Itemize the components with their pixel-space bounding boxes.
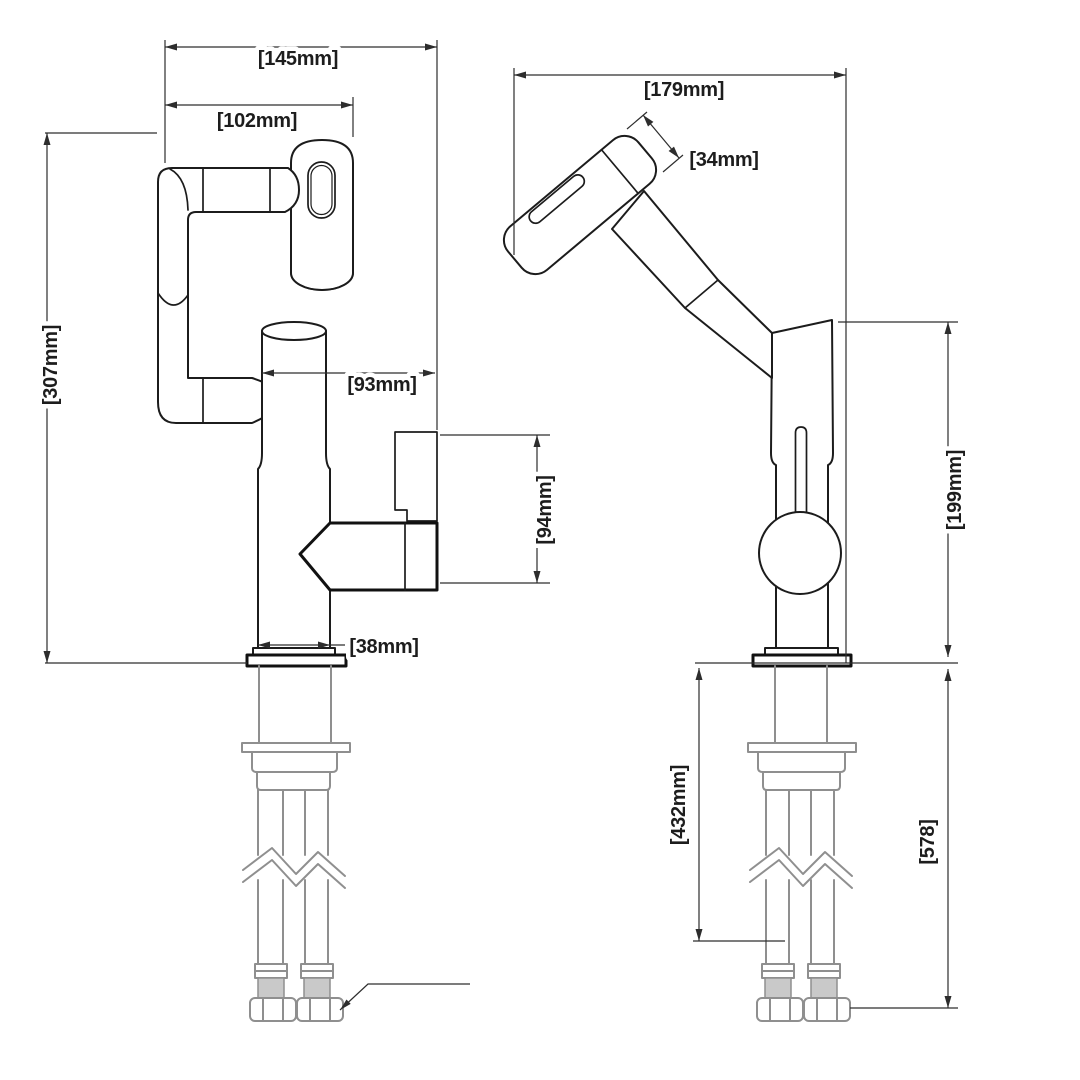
side-view: [179mm] [34mm] [199mm] [432mm] [578]: [497, 68, 966, 1021]
front-spray-head: [291, 140, 353, 290]
dim-label-side-height-above-counter: [199mm]: [944, 450, 966, 530]
hose-hex-nut: [804, 998, 850, 1021]
front-side-spout: [300, 523, 437, 590]
dim-label-side-overall-reach: [179mm]: [644, 79, 724, 101]
side-knob: [759, 512, 841, 594]
dim-label-front-base-diameter: [38mm]: [349, 636, 418, 658]
front-view: [145mm] [102mm] [307mm] [93mm] [94mm]: [40, 40, 556, 1021]
side-neck: [612, 191, 772, 378]
front-mounting-hardware: [242, 666, 470, 1021]
dim-label-front-overall-height: [307mm]: [40, 325, 62, 405]
mounting-washer: [242, 743, 350, 752]
mounting-nut: [758, 752, 845, 772]
side-supply-hoses: [750, 790, 852, 1021]
hose-hex-nut: [297, 998, 343, 1021]
side-lever-rod: [796, 427, 807, 520]
hose-nut-leader: [340, 984, 470, 1010]
dim-label-front-overall-width: [145mm]: [258, 48, 338, 70]
dim-label-side-hose-length: [432mm]: [668, 765, 690, 845]
front-supply-hoses: [243, 790, 345, 1021]
dim-label-side-total-below-length: [578]: [917, 819, 939, 864]
dim-label-front-body-to-handle: [93mm]: [347, 374, 416, 396]
mounting-nut: [252, 752, 337, 772]
front-base-flange: [247, 648, 346, 666]
technical-drawing-page: [145mm] [102mm] [307mm] [93mm] [94mm]: [0, 0, 1080, 1080]
faucet-drawing-svg: [145mm] [102mm] [307mm] [93mm] [94mm]: [0, 0, 1080, 1080]
dim-label-front-spout-width: [102mm]: [217, 110, 297, 132]
hose-hex-nut: [250, 998, 296, 1021]
mounting-washer: [748, 743, 856, 752]
dim-label-side-head-width: [34mm]: [689, 149, 758, 171]
dim-label-front-handle-height: [94mm]: [534, 475, 556, 544]
side-mounting-hardware: [748, 666, 856, 1021]
hose-hex-nut: [757, 998, 803, 1021]
pipe-top-ellipse: [262, 322, 326, 340]
